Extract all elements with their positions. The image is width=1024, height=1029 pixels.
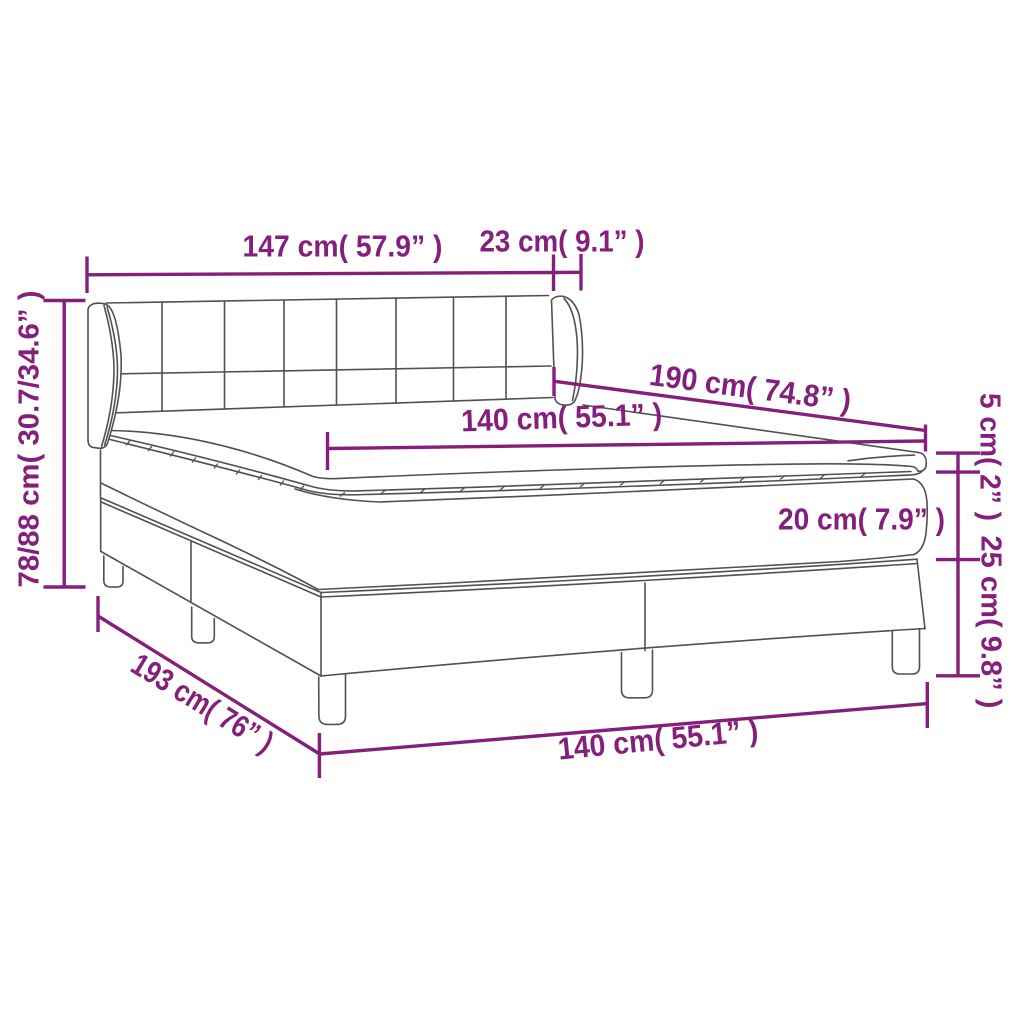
svg-text:23 cm( 9.1” ): 23 cm( 9.1” ) <box>480 224 645 259</box>
svg-text:140 cm( 55.1” ): 140 cm( 55.1” ) <box>461 397 663 439</box>
svg-text:25 cm( 9.8” ): 25 cm( 9.8” ) <box>975 536 1007 709</box>
svg-text:147 cm( 57.9” ): 147 cm( 57.9” ) <box>243 229 443 264</box>
svg-text:78/88 cm( 30.7/34.6” ): 78/88 cm( 30.7/34.6” ) <box>14 291 46 588</box>
svg-text:20 cm( 7.9” ): 20 cm( 7.9” ) <box>778 501 945 536</box>
svg-text:5 cm( 2” ): 5 cm( 2” ) <box>974 393 1006 521</box>
